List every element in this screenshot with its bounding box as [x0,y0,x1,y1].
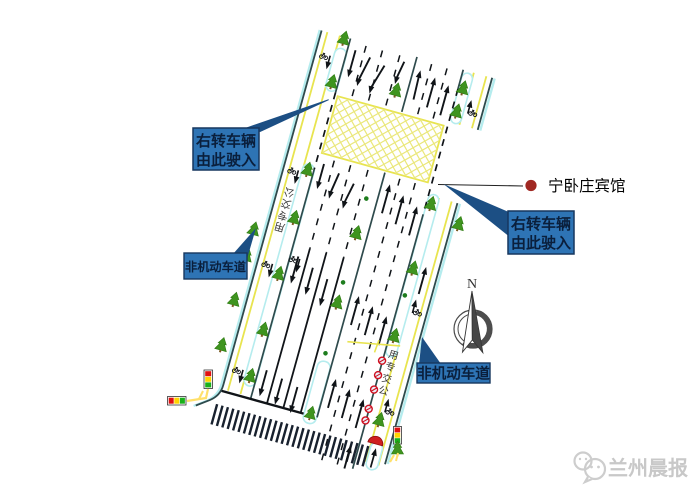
svg-text:非机动车道: 非机动车道 [417,365,490,383]
svg-text:由此驶入: 由此驶入 [196,151,256,169]
svg-text:N: N [467,277,477,292]
svg-text:兰州晨报: 兰州晨报 [608,456,688,480]
svg-text:宁卧庄宾馆: 宁卧庄宾馆 [548,177,626,195]
svg-text:由此驶入: 由此驶入 [511,234,571,252]
svg-text:右转车辆: 右转车辆 [511,215,571,233]
svg-text:非机动车道: 非机动车道 [185,259,247,274]
svg-text:右转车辆: 右转车辆 [196,132,256,150]
